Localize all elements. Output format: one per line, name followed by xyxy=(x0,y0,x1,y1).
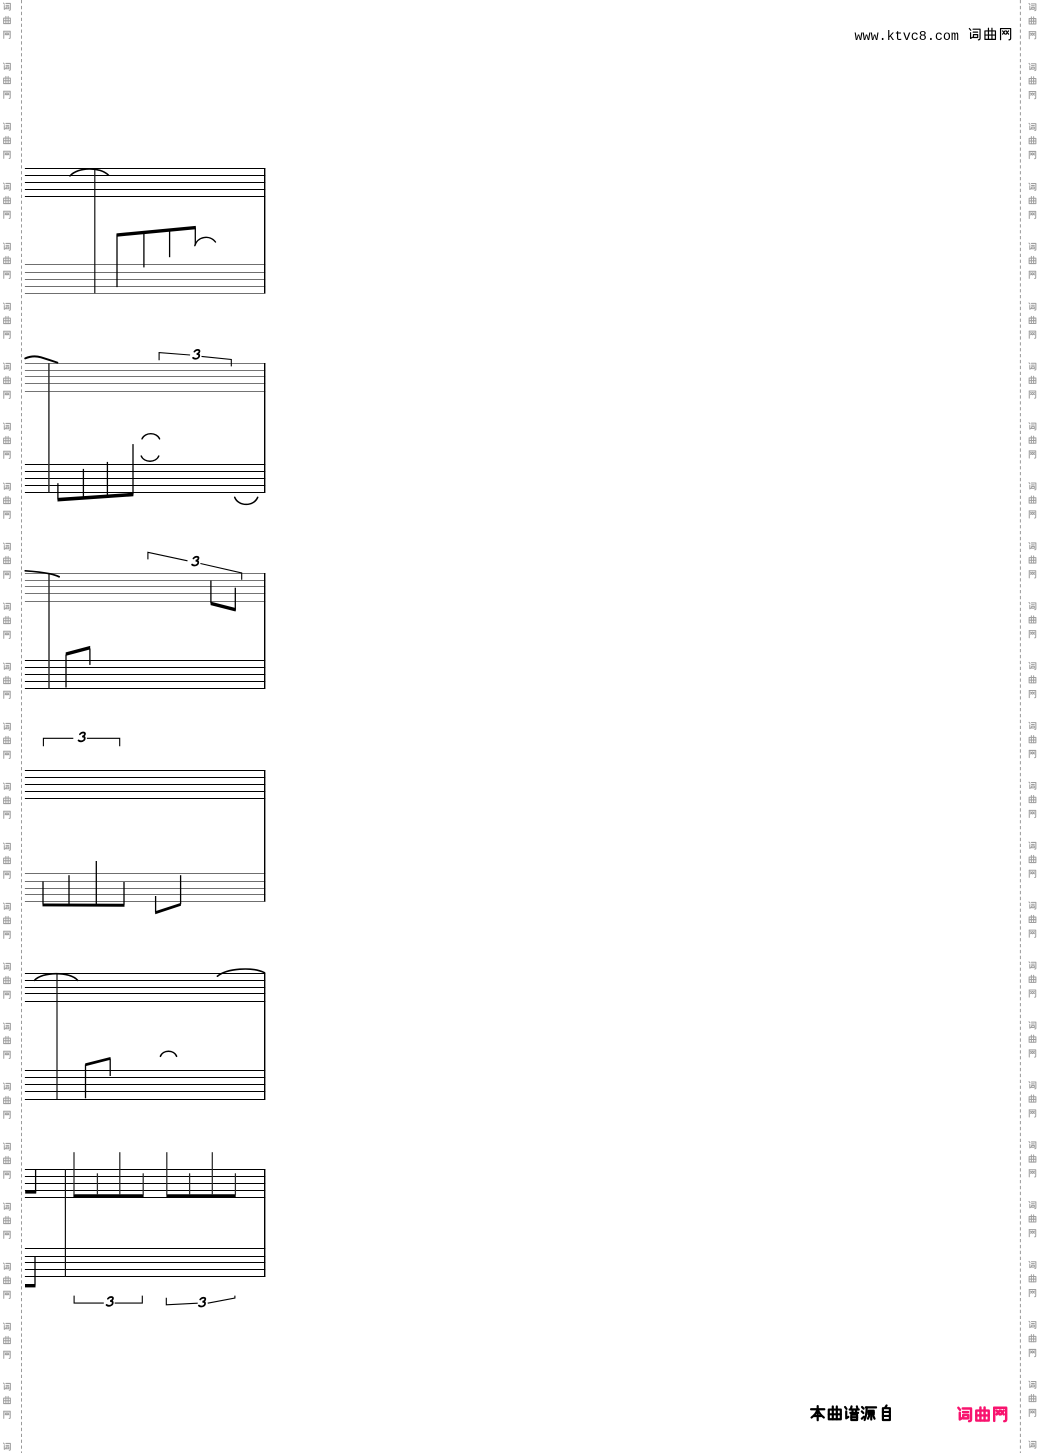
svg-text:www.ktvc8.com: www.ktvc8.com xyxy=(855,30,959,45)
